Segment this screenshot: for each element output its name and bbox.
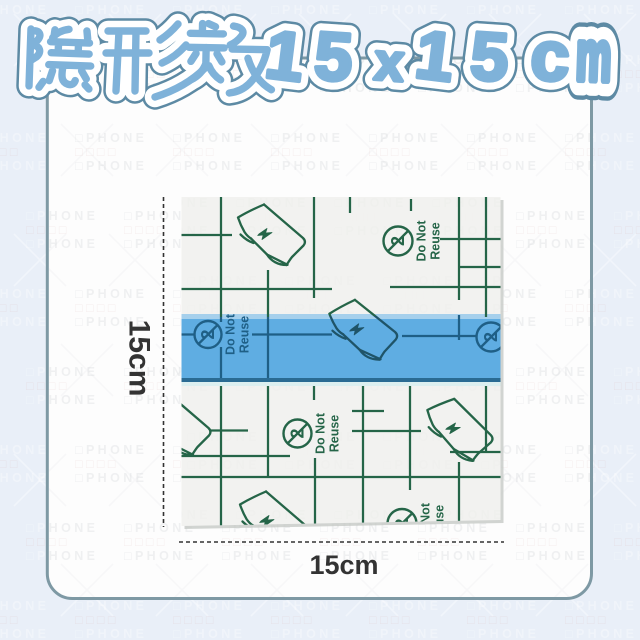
svg-text:□PHONE: □PHONE	[369, 627, 441, 640]
svg-text:□□□□: □□□□	[369, 145, 413, 159]
svg-text:□□□□: □□□□	[75, 613, 119, 627]
svg-text:□PHONE: □PHONE	[188, 430, 260, 444]
svg-text:□PHONE: □PHONE	[418, 549, 490, 563]
svg-text:□□□□: □□□□	[271, 145, 315, 159]
svg-text:x: x	[373, 33, 406, 93]
svg-text:□PHONE: □PHONE	[0, 443, 49, 457]
svg-text:□□□□: □□□□	[614, 67, 640, 81]
svg-text:□PHONE: □PHONE	[222, 549, 294, 563]
svg-text:□PHONE: □PHONE	[614, 81, 640, 95]
svg-text:□PHONE: □PHONE	[173, 131, 245, 145]
svg-text:Reuse: Reuse	[328, 415, 342, 453]
svg-text:2: 2	[288, 428, 308, 438]
svg-text:□PHONE: □PHONE	[369, 599, 441, 613]
svg-text:□PHONE: □PHONE	[467, 3, 539, 17]
svg-text:Do Not: Do Not	[415, 220, 429, 262]
svg-text:2: 2	[388, 236, 408, 246]
svg-text:□PHONE: □PHONE	[271, 131, 343, 145]
svg-text:□PHONE: □PHONE	[75, 627, 147, 640]
svg-text:□PHONE: □PHONE	[75, 287, 147, 301]
svg-text:□PHONE: □PHONE	[173, 599, 245, 613]
svg-text:2: 2	[481, 332, 501, 342]
svg-text:□□□□: □□□□	[467, 145, 511, 159]
svg-text:□PHONE: □PHONE	[173, 627, 245, 640]
svg-text:□PHONE: □PHONE	[75, 599, 147, 613]
svg-text:m: m	[575, 17, 613, 97]
svg-text:□PHONE: □PHONE	[0, 471, 49, 485]
svg-text:□PHONE: □PHONE	[516, 237, 588, 251]
svg-text:c: c	[529, 16, 572, 96]
svg-text:□PHONE: □PHONE	[0, 599, 49, 613]
svg-text:□PHONE: □PHONE	[433, 196, 505, 210]
svg-text:15cm: 15cm	[309, 550, 378, 580]
svg-text:□PHONE: □PHONE	[433, 224, 505, 238]
svg-text:□PHONE: □PHONE	[384, 458, 456, 472]
svg-text:□PHONE: □PHONE	[467, 599, 539, 613]
svg-text:5: 5	[312, 18, 355, 96]
svg-text:□PHONE: □PHONE	[271, 3, 343, 17]
svg-text:□PHONE: □PHONE	[614, 53, 640, 67]
svg-text:□PHONE: □PHONE	[271, 627, 343, 640]
svg-text:□PHONE: □PHONE	[286, 274, 358, 288]
svg-text:□□□□: □□□□	[124, 535, 168, 549]
svg-text:□PHONE: □PHONE	[0, 159, 49, 173]
svg-text:□□□□: □□□□	[75, 457, 119, 471]
svg-text:□□□□: □□□□	[75, 145, 119, 159]
svg-text:□PHONE: □PHONE	[516, 365, 588, 379]
svg-text:□PHONE: □PHONE	[75, 471, 147, 485]
svg-text:□PHONE: □PHONE	[614, 393, 640, 407]
svg-text:□PHONE: □PHONE	[467, 131, 539, 145]
svg-text:□PHONE: □PHONE	[565, 627, 637, 640]
svg-text:□PHONE: □PHONE	[516, 209, 588, 223]
svg-text:Reuse: Reuse	[238, 316, 252, 354]
svg-text:□□□□: □□□□	[173, 145, 217, 159]
svg-text:□□□□: □□□□	[565, 613, 609, 627]
svg-text:□PHONE: □PHONE	[75, 3, 147, 17]
svg-text:□PHONE: □PHONE	[516, 521, 588, 535]
svg-text:□PHONE: □PHONE	[565, 599, 637, 613]
svg-text:□□□□: □□□□	[271, 613, 315, 627]
svg-text:□PHONE: □PHONE	[0, 627, 49, 640]
svg-text:□PHONE: □PHONE	[0, 315, 49, 329]
svg-text:Do Not: Do Not	[224, 313, 238, 355]
svg-text:□PHONE: □PHONE	[467, 159, 539, 173]
svg-text:□PHONE: □PHONE	[614, 365, 640, 379]
svg-text:□□□□: □□□□	[173, 613, 217, 627]
svg-text:□PHONE: □PHONE	[565, 3, 637, 17]
svg-text:□PHONE: □PHONE	[384, 302, 456, 316]
svg-text:□PHONE: □PHONE	[188, 274, 260, 288]
svg-text:5: 5	[468, 18, 511, 96]
svg-text:□□□□: □□□□	[75, 301, 119, 315]
svg-text:□PHONE: □PHONE	[188, 302, 260, 316]
svg-text:□□□□: □□□□	[433, 210, 477, 224]
svg-text:□□□□: □□□□	[384, 444, 428, 458]
svg-text:□□□□: □□□□	[516, 379, 560, 393]
svg-text:□PHONE: □PHONE	[335, 196, 407, 210]
svg-text:Do Not: Do Not	[314, 412, 328, 454]
svg-text:□PHONE: □PHONE	[237, 196, 309, 210]
svg-text:□□□□: □□□□	[0, 457, 21, 471]
svg-text:□PHONE: □PHONE	[0, 3, 49, 17]
svg-text:□PHONE: □PHONE	[188, 458, 260, 472]
svg-text:□PHONE: □PHONE	[75, 159, 147, 173]
svg-text:□□□□: □□□□	[124, 223, 168, 237]
svg-text:□□□□: □□□□	[467, 613, 511, 627]
svg-text:□PHONE: □PHONE	[173, 159, 245, 173]
svg-text:□□□□: □□□□	[369, 613, 413, 627]
svg-text:□□□□: □□□□	[0, 613, 21, 627]
svg-text:□□□□: □□□□	[614, 379, 640, 393]
svg-text:□PHONE: □PHONE	[369, 131, 441, 145]
svg-text:□PHONE: □PHONE	[614, 549, 640, 563]
svg-text:□PHONE: □PHONE	[271, 599, 343, 613]
svg-text:□□□□: □□□□	[516, 223, 560, 237]
svg-text:□PHONE: □PHONE	[75, 131, 147, 145]
svg-text:□PHONE: □PHONE	[614, 521, 640, 535]
svg-text:Reuse: Reuse	[429, 222, 443, 260]
svg-text:□PHONE: □PHONE	[467, 627, 539, 640]
svg-text:□PHONE: □PHONE	[369, 159, 441, 173]
svg-text:□□□□: □□□□	[0, 301, 21, 315]
svg-text:□PHONE: □PHONE	[614, 237, 640, 251]
svg-text:□PHONE: □PHONE	[614, 209, 640, 223]
svg-text:□PHONE: □PHONE	[124, 549, 196, 563]
svg-text:□PHONE: □PHONE	[516, 549, 588, 563]
svg-text:□PHONE: □PHONE	[369, 3, 441, 17]
svg-text:□PHONE: □PHONE	[0, 287, 49, 301]
svg-text:□PHONE: □PHONE	[286, 458, 358, 472]
svg-text:□PHONE: □PHONE	[271, 159, 343, 173]
svg-text:□□□□: □□□□	[384, 288, 428, 302]
svg-text:□□□□: □□□□	[614, 223, 640, 237]
svg-text:15cm: 15cm	[123, 320, 156, 397]
svg-text:□□□□: □□□□	[335, 210, 379, 224]
svg-text:2: 2	[198, 329, 218, 339]
svg-text:□□□□: □□□□	[516, 535, 560, 549]
svg-text:□□□□: □□□□	[0, 145, 21, 159]
svg-text:□□□□: □□□□	[614, 535, 640, 549]
svg-text:□PHONE: □PHONE	[75, 443, 147, 457]
svg-text:□PHONE: □PHONE	[516, 393, 588, 407]
svg-text:□PHONE: □PHONE	[0, 131, 49, 145]
